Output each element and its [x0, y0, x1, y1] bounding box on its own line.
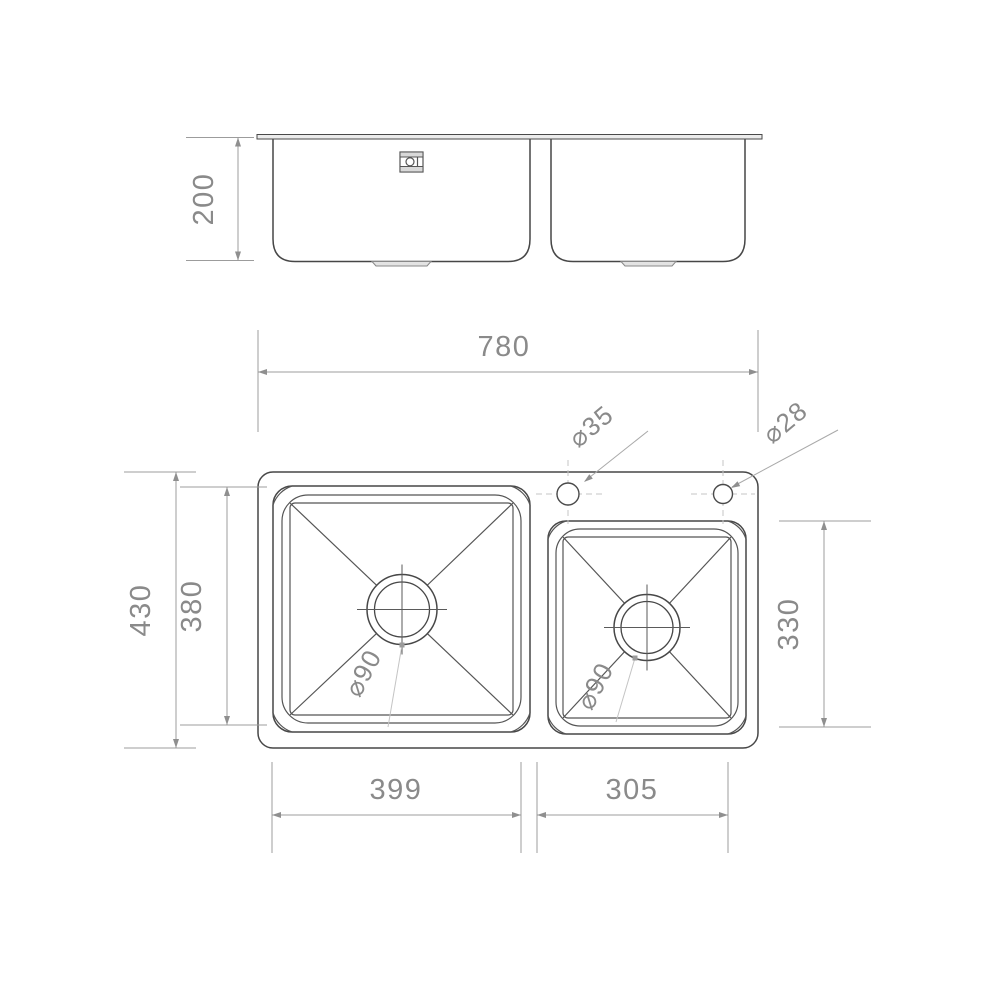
right-bowl: ⌀90	[548, 521, 746, 734]
right-bowl-profile	[551, 139, 745, 262]
dimension-right-bowl-330: 330	[773, 521, 871, 727]
faucet-hole-left-label: ⌀35	[563, 399, 620, 454]
dim-label-380: 380	[176, 580, 208, 633]
faucet-hole-left-callout: ⌀35	[563, 399, 648, 482]
brand-logo	[400, 152, 423, 172]
left-bowl: ⌀90	[273, 486, 530, 732]
sink-rim-profile	[257, 135, 762, 140]
left-drain-label: ⌀90	[338, 644, 388, 701]
dim-label-780: 780	[478, 331, 531, 363]
right-drain-callout: ⌀90	[570, 656, 637, 723]
dim-label-430: 430	[125, 584, 157, 637]
right-drain	[604, 585, 690, 671]
right-drain-boss	[621, 262, 676, 267]
faucet-hole-right-label: ⌀28	[757, 395, 814, 450]
dimension-left-bowl-399: 399	[272, 762, 521, 853]
dim-label-399: 399	[370, 774, 423, 806]
plan-view: ⌀90	[124, 330, 871, 853]
sink-outer-body	[258, 472, 758, 748]
dimension-width-780: 780	[258, 330, 758, 432]
dim-label-200: 200	[188, 173, 220, 226]
left-drain-callout: ⌀90	[338, 643, 404, 728]
drawing-svg: 200	[0, 0, 1000, 1000]
faucet-hole-right	[691, 460, 755, 524]
left-drain-boss	[372, 262, 431, 267]
left-drain	[357, 565, 447, 655]
right-drain-label: ⌀90	[570, 657, 620, 714]
dimension-depth-200: 200	[186, 138, 254, 261]
sink-technical-drawing: 200	[0, 0, 1000, 1000]
dimension-left-bowl-380: 380	[176, 487, 267, 725]
faucet-hole-left	[536, 460, 602, 524]
dim-label-305: 305	[606, 774, 659, 806]
dimension-right-bowl-305: 305	[537, 762, 728, 853]
faucet-hole-right-callout: ⌀28	[731, 395, 838, 488]
front-elevation-view: 200	[186, 135, 762, 267]
dim-label-330: 330	[773, 598, 805, 651]
